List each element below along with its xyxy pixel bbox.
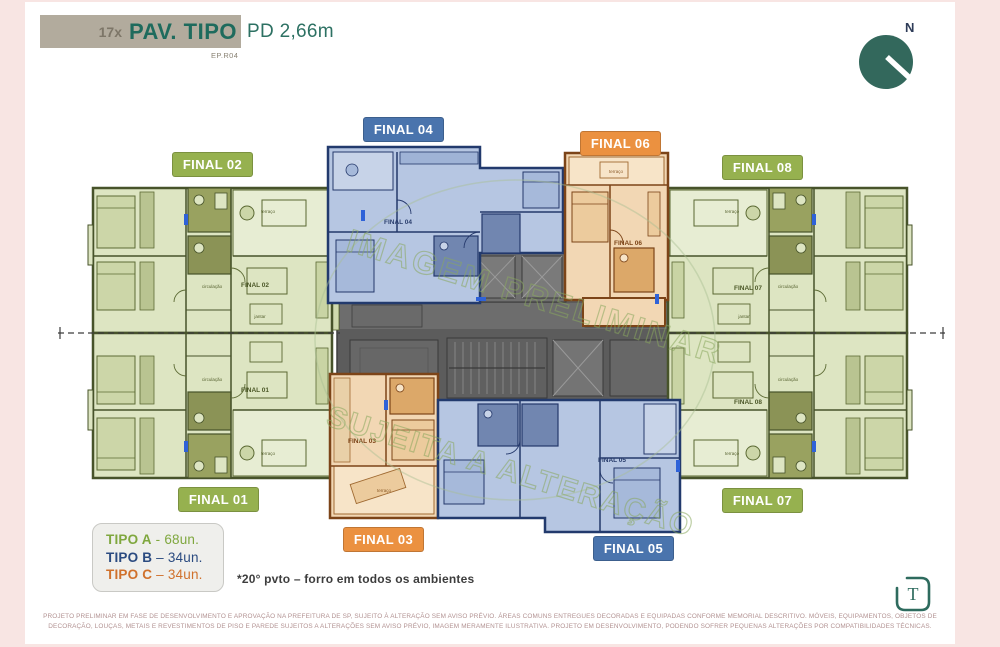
room-label-dining: jantar — [737, 314, 750, 319]
unit-label-final-02: FINAL 02 — [241, 282, 269, 289]
final-03-badge: FINAL 03 — [343, 527, 424, 552]
ceiling-height: PD 2,66m — [247, 21, 334, 43]
legend-tipo-a-count: 68un. — [164, 532, 199, 547]
legend-tipo-c-count: 34un. — [168, 567, 203, 582]
revision-code: EP.R04 — [211, 51, 238, 60]
room-label-terrace: terraço — [609, 169, 624, 174]
unit-label-final-07: FINAL 07 — [734, 285, 762, 292]
legend-item-tipo-a: TIPO A - 68un. — [106, 531, 223, 549]
note-text: *20° pvto – forro em todos os ambientes — [237, 572, 474, 586]
page-background: FINAL 02 FINAL 01 FINAL 07 FINAL 08 FINA… — [0, 0, 1000, 647]
legend-tipo-a-sep: - — [156, 532, 161, 547]
header: 17x PAV. TIPO PD 2,66m — [40, 15, 334, 48]
stairs-icon — [447, 338, 547, 398]
unit-label-final-06: FINAL 06 — [614, 240, 642, 247]
unit-label-final-05: FINAL 05 — [598, 457, 626, 464]
unit-label-final-01: FINAL 01 — [241, 387, 269, 394]
disclaimer-line-2: DECORAÇÃO, LOUÇAS, METAIS E REVESTIMENTO… — [25, 622, 955, 632]
brand-logo: T — [893, 574, 933, 614]
legend-tipo-b-sep: – — [156, 550, 164, 565]
legend-item-tipo-b: TIPO B – 34un. — [106, 549, 223, 567]
room-label-terrace: terraço — [377, 488, 392, 493]
page-title: PAV. TIPO — [129, 19, 237, 45]
floor-count: 17x — [99, 24, 122, 40]
disclaimer-line-1: PROJETO PRELIMINAR EM FASE DE DESENVOLVI… — [25, 612, 955, 622]
header-bar: 17x PAV. TIPO — [40, 15, 241, 48]
room-label-terrace: terraço — [725, 209, 740, 214]
final-05-badge: FINAL 05 — [593, 536, 674, 561]
legend-tipo-b-name: TIPO B — [106, 550, 152, 565]
final-07-badge: FINAL 07 — [722, 488, 803, 513]
final-08-badge: FINAL 08 — [722, 155, 803, 180]
room-label-circulation: circulação — [202, 284, 223, 289]
room-label-terrace: terraço — [725, 451, 740, 456]
room-label-circulation: circulação — [202, 377, 223, 382]
room-label-circulation: circulação — [778, 377, 799, 382]
disclaimer: PROJETO PRELIMINAR EM FASE DE DESENVOLVI… — [25, 612, 955, 631]
north-label: N — [905, 20, 914, 35]
unit-label-final-04: FINAL 04 — [384, 219, 412, 226]
logo-letter: T — [908, 584, 919, 604]
final-02-badge: FINAL 02 — [172, 152, 253, 177]
unit-label-final-08: FINAL 08 — [734, 399, 762, 406]
final-04-badge: FINAL 04 — [363, 117, 444, 142]
north-arrow-icon — [859, 35, 913, 89]
room-label-circulation: circulação — [778, 284, 799, 289]
sheet: FINAL 02 FINAL 01 FINAL 07 FINAL 08 FINA… — [25, 2, 955, 644]
room-label-dining: jantar — [253, 314, 266, 319]
compass: N — [855, 14, 945, 99]
legend-tipo-c-sep: – — [156, 567, 164, 582]
final-01-badge: FINAL 01 — [178, 487, 259, 512]
t-logo-icon: T — [897, 578, 929, 610]
legend-item-tipo-c: TIPO C – 34un. — [106, 566, 223, 584]
room-label-terrace: terraço — [261, 451, 276, 456]
legend: TIPO A - 68un. TIPO B – 34un. TIPO C – 3… — [92, 523, 224, 592]
room-label-terrace: terraço — [261, 209, 276, 214]
legend-tipo-c-name: TIPO C — [106, 567, 152, 582]
legend-tipo-a-name: TIPO A — [106, 532, 152, 547]
final-06-badge: FINAL 06 — [580, 131, 661, 156]
legend-tipo-b-count: 34un. — [168, 550, 203, 565]
